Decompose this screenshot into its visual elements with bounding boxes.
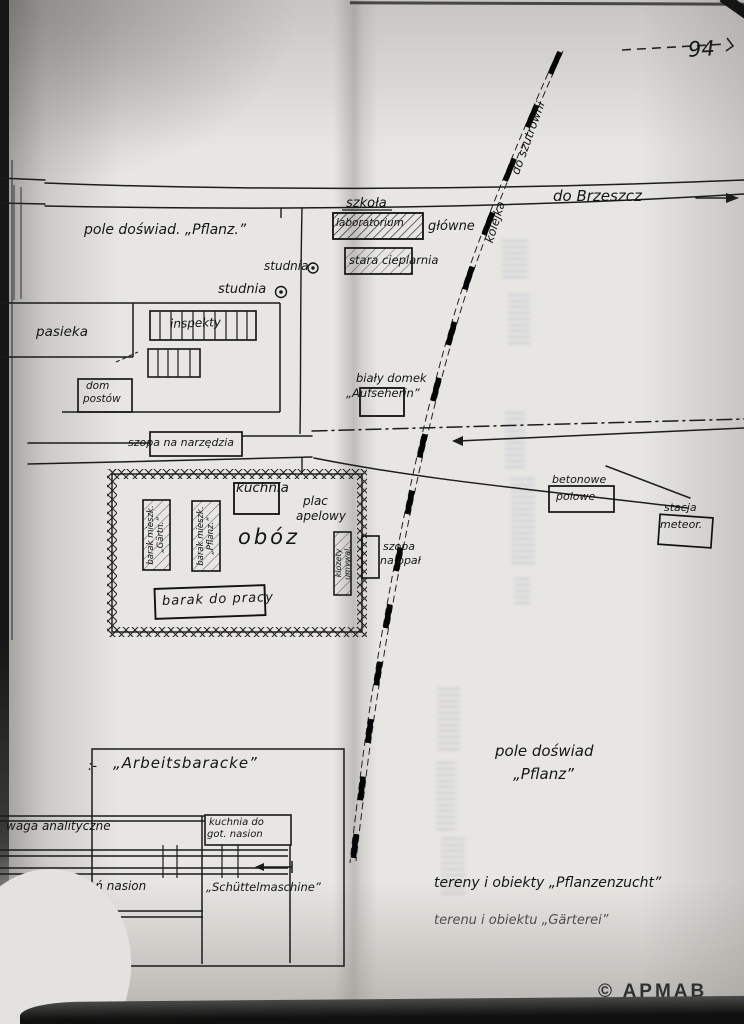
road-label-brzeszcz: do Brzeszcz	[553, 189, 642, 205]
toilets-line1: klozety	[334, 549, 343, 578]
hotbeds-label: inspekty	[170, 316, 221, 330]
kitchen-label: kuchnia	[236, 481, 289, 495]
road-arrow-west	[452, 436, 463, 446]
camp-name-label: obóz	[238, 526, 300, 548]
map-linework	[0, 0, 744, 1024]
laboratory-label: laboratorium	[336, 218, 404, 229]
work-building-prefix: :-	[88, 760, 97, 774]
laboratory-main-label: główne	[428, 220, 475, 234]
shelf-arrow	[255, 863, 264, 871]
machine-label: „Schüttelmaschine”	[206, 881, 321, 893]
middle-road	[28, 419, 744, 508]
field-bottom-label-2: „Pflanz”	[513, 767, 574, 783]
concrete-label-2: polowe	[556, 491, 595, 503]
meteo-label-2: meteor.	[660, 519, 702, 531]
apiary-label: pasieka	[36, 325, 88, 339]
caption-line-2: terenu i obiektu „Gärterei”	[434, 914, 609, 928]
page-number: 94	[687, 37, 715, 60]
school-label: szkoła	[346, 197, 387, 211]
seed-tables-label: stoły do obliczań nasion	[2, 880, 146, 893]
seed-kitchen-label-1: kuchnia do	[209, 818, 264, 829]
field-bottom-label-1: pole doświad	[495, 744, 594, 760]
barrack-gaertn-line1: barak mieszk.	[146, 505, 156, 564]
toilets-label: klozety umywal.	[334, 546, 352, 580]
archive-credit: © APMAB	[598, 981, 707, 1003]
square-label-1: plac	[303, 495, 328, 508]
well-upper-label: studnia	[264, 260, 308, 273]
toilets-line2: umywal.	[343, 546, 352, 580]
field-top-label: pole doświad. „Pflanz.”	[84, 223, 246, 238]
caption-line-1: tereny i obiekty „Pflanzenzucht”	[434, 876, 661, 891]
well-lower-label: studnia	[218, 283, 266, 297]
barrack-pflanz-label: barak mieszk. „Pflanz.”	[196, 506, 216, 565]
work-building-title: „Arbeitsbaracke”	[113, 756, 258, 772]
scanned-map-page: 94 do Brzeszcz szkoła laboratorium główn…	[0, 0, 744, 1024]
fuel-shed-label-1: szopa	[383, 541, 415, 553]
scales-label: waga analityczne	[6, 820, 111, 833]
fuel-shed-label-2: na opał	[380, 555, 421, 567]
meteo-label-1: stacja	[664, 502, 697, 514]
concrete-label-1: betonowe	[552, 474, 606, 486]
keeper-house-label-2: postów	[83, 394, 121, 405]
barrack-gaertn-line2: „Gärtn.”	[156, 517, 166, 553]
work-building	[0, 749, 344, 968]
barrack-pflanz-line1: barak mieszk.	[196, 506, 206, 565]
tool-shed-label: szopa na narzędzia	[128, 437, 234, 449]
square-label-2: apelowy	[296, 510, 346, 523]
apiary-field	[0, 303, 280, 412]
greenhouse-label: stara cieplarnia	[349, 254, 438, 266]
white-house-label-2: „Aufseherin”	[346, 387, 420, 399]
barrack-gaertn-label: barak mieszk. „Gärtn.”	[146, 505, 166, 564]
barrack-pflanz-line2: „Pflanz.”	[206, 517, 216, 554]
keeper-house-label-1: dom	[86, 381, 109, 392]
white-house-label-1: biały domek	[356, 372, 427, 384]
seed-kitchen-label-2: got. nasion	[207, 830, 263, 841]
dashed-line-topright	[622, 38, 733, 51]
